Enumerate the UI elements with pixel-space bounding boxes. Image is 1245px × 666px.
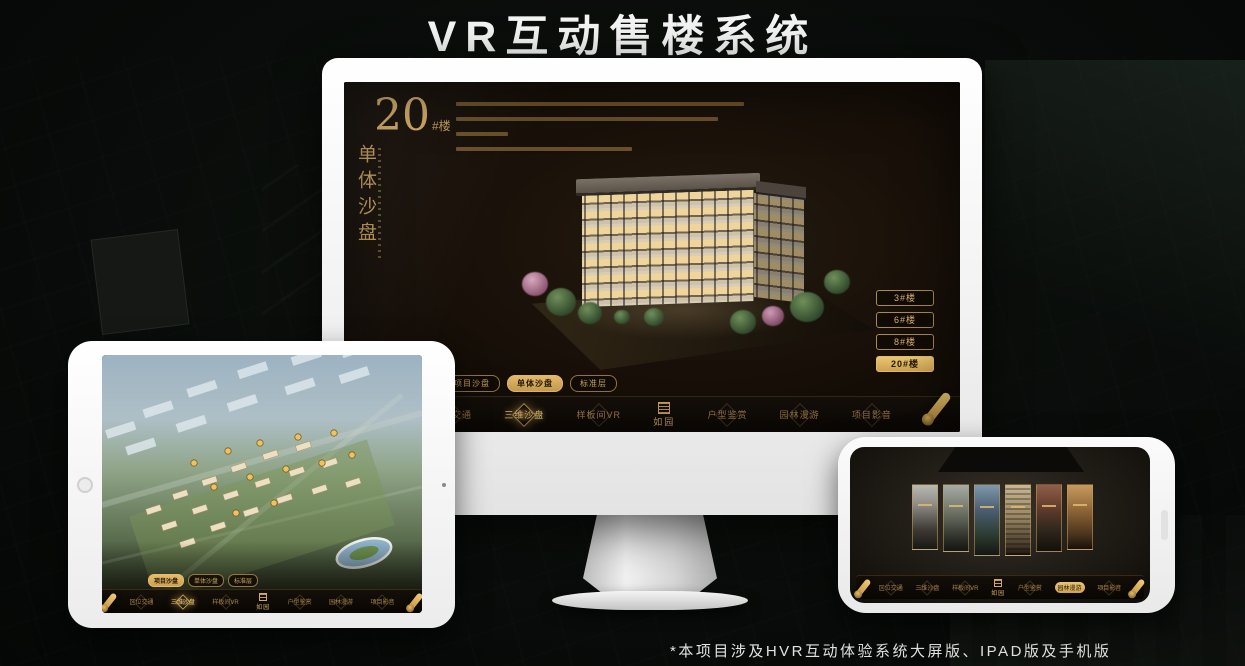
page-title: VR互动售楼系统 [0, 2, 1245, 64]
brand-seal-icon [259, 593, 267, 601]
tree [614, 310, 630, 324]
nav-item-3d-sandbox[interactable]: 三维沙盘 [504, 408, 544, 421]
phone-notch [1161, 510, 1168, 540]
nav-item-garden-tour[interactable]: 园林漫游 [329, 597, 353, 606]
nav-item-model-room-vr[interactable]: 样板间VR [952, 583, 978, 592]
brand-logo: 如园 [653, 402, 675, 428]
description-line [456, 132, 508, 136]
scroll-handle-icon[interactable] [854, 578, 871, 597]
nav-item-unit-appreciation[interactable]: 户型鉴赏 [707, 408, 747, 421]
nav-item-location-traffic[interactable]: 区位交通 [879, 583, 903, 592]
nav-item-project-video[interactable]: 项目影音 [370, 597, 394, 606]
tablet-sandbox-subtabs: 项目沙盘 单体沙盘 标准层 [148, 574, 258, 587]
tablet-main-nav: 区位交通 三维沙盘 样板间VR 如园 户型鉴赏 园林漫游 项目影音 [102, 589, 422, 613]
nav-item-location-traffic[interactable]: 区位交通 [129, 597, 153, 606]
background-photo-top-right [985, 60, 1245, 410]
tablet-tab-standard-floor[interactable]: 标准层 [228, 574, 258, 587]
tablet-device: 项目沙盘 单体沙盘 标准层 区位交通 三维沙盘 样板间VR 如园 户型鉴赏 园林… [68, 341, 455, 628]
tree [790, 292, 824, 322]
brand-logo-text: 如园 [256, 602, 270, 611]
gallery-panel-highrise[interactable] [1005, 484, 1031, 556]
tree [730, 310, 756, 334]
tablet-home-button[interactable] [77, 477, 93, 493]
gallery-panel-dusk-exterior[interactable] [974, 484, 1000, 556]
interior-ceiling-beam [938, 447, 1084, 472]
tablet-camera-icon [442, 483, 446, 487]
brand-logo: 如园 [256, 593, 270, 611]
building-button-6[interactable]: 6#楼 [876, 312, 934, 328]
nav-item-unit-appreciation[interactable]: 户型鉴赏 [288, 597, 312, 606]
description-line [456, 147, 632, 151]
phone-main-nav: 区位交通 三维沙盘 样板间VR 如园 户型鉴赏 园林漫游 项目影音 [856, 575, 1144, 599]
tree [546, 288, 576, 316]
nav-item-unit-appreciation[interactable]: 户型鉴赏 [1018, 583, 1042, 592]
tab-single-sandbox[interactable]: 单体沙盘 [507, 375, 563, 392]
description-line [456, 117, 718, 121]
flower-tree [522, 272, 548, 296]
nav-item-3d-sandbox[interactable]: 三维沙盘 [171, 597, 195, 606]
gallery-panel-warm-interior[interactable] [1067, 484, 1093, 550]
stage: VR互动售楼系统 20#楼 单体沙盘 [0, 0, 1245, 666]
building-select-list: 3#楼 6#楼 8#楼 20#楼 [876, 290, 934, 372]
nav-item-model-room-vr[interactable]: 样板间VR [212, 597, 238, 606]
brand-seal-icon [994, 579, 1002, 587]
tablet-screen: 项目沙盘 单体沙盘 标准层 区位交通 三维沙盘 样板间VR 如园 户型鉴赏 园林… [102, 355, 422, 613]
gallery-panel-terrace[interactable] [943, 484, 969, 552]
building-button-8[interactable]: 8#楼 [876, 334, 934, 350]
description-lines [456, 102, 744, 162]
tree [824, 270, 850, 294]
building-3d-render[interactable] [494, 160, 874, 372]
description-line [456, 102, 744, 106]
building-front-facade [582, 187, 754, 307]
tree [644, 308, 664, 326]
tablet-tab-project-sandbox[interactable]: 项目沙盘 [148, 574, 184, 587]
tree [578, 302, 602, 324]
brand-logo-text: 如园 [991, 588, 1005, 597]
building-button-3[interactable]: 3#楼 [876, 290, 934, 306]
scroll-handle-icon[interactable] [102, 592, 118, 611]
background-plaque [90, 229, 189, 335]
headline-vertical-title: 单体沙盘 [352, 144, 379, 284]
brand-logo: 如园 [991, 579, 1005, 597]
brand-seal-icon [658, 402, 670, 414]
nav-item-3d-sandbox[interactable]: 三维沙盘 [915, 583, 939, 592]
nav-item-project-video[interactable]: 项目影音 [1097, 583, 1121, 592]
headline-block: 20#楼 [374, 94, 451, 138]
nav-item-garden-tour[interactable]: 园林漫游 [780, 408, 820, 421]
flower-tree [762, 306, 784, 326]
gallery-panel-garden[interactable] [1036, 484, 1062, 552]
nav-item-project-video[interactable]: 项目影音 [852, 408, 892, 421]
brand-logo-text: 如园 [653, 415, 675, 428]
phone-screen: 区位交通 三维沙盘 样板间VR 如园 户型鉴赏 园林漫游 项目影音 [850, 447, 1150, 603]
scroll-handle-icon[interactable] [1128, 578, 1145, 597]
scroll-handle-icon[interactable] [923, 391, 952, 425]
phone-device: 区位交通 三维沙盘 样板间VR 如园 户型鉴赏 园林漫游 项目影音 [838, 437, 1175, 613]
building-button-20[interactable]: 20#楼 [876, 356, 934, 372]
monitor-stand-base [552, 591, 748, 610]
scroll-handle-icon[interactable] [406, 592, 422, 611]
gallery-panels [912, 484, 1093, 556]
footnote: *本项目涉及HVR互动体验系统大屏版、IPAD版及手机版 [670, 640, 1111, 661]
nav-item-garden-tour[interactable]: 园林漫游 [1055, 582, 1085, 593]
gallery-panel-interior[interactable] [912, 484, 938, 550]
headline-suffix: #楼 [432, 119, 451, 133]
tab-standard-floor[interactable]: 标准层 [570, 375, 617, 392]
headline-vertical-subtext [378, 148, 381, 258]
monitor-stand-neck [583, 511, 717, 595]
headline-number: 20 [374, 90, 430, 141]
tablet-tab-single-sandbox[interactable]: 单体沙盘 [188, 574, 224, 587]
nav-item-model-room-vr[interactable]: 样板间VR [576, 408, 621, 421]
sandbox-subtabs: 项目沙盘 单体沙盘 标准层 [444, 375, 617, 392]
building-side-facade [754, 193, 804, 303]
